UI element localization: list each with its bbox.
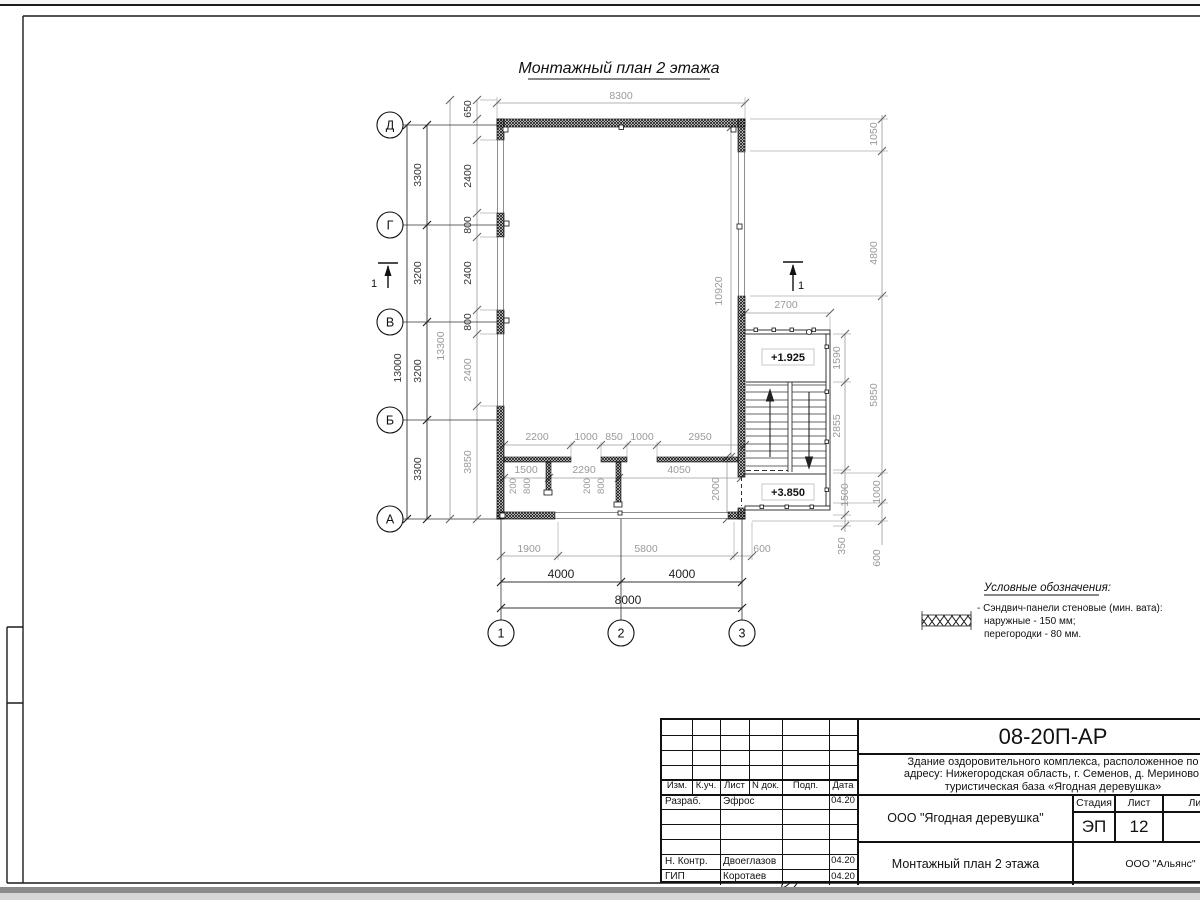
svg-text:А: А xyxy=(386,513,395,527)
svg-text:3: 3 xyxy=(739,627,746,641)
svg-text:4000: 4000 xyxy=(548,567,575,581)
tb-role-razrab: Разраб. xyxy=(662,794,720,809)
svg-text:2950: 2950 xyxy=(688,431,712,443)
svg-text:600: 600 xyxy=(753,543,771,555)
axis-bubble-labels-bottom: 1 2 3 xyxy=(498,627,746,641)
tb-header-ndok: N док. xyxy=(749,779,782,794)
svg-text:850: 850 xyxy=(605,431,623,443)
svg-text:1050: 1050 xyxy=(868,122,880,146)
elevation-lower: +3.850 xyxy=(762,484,814,500)
dimension-lines-axis xyxy=(407,125,742,608)
dim-labels-bottom: 1900 5800 600 4000 4000 8000 xyxy=(517,543,771,607)
svg-text:2400: 2400 xyxy=(462,164,474,188)
tb-header-data: Дата xyxy=(829,779,857,794)
svg-text:2400: 2400 xyxy=(462,261,474,285)
dim-labels-left-panels: 650 2400 800 2400 800 2400 3850 13300 xyxy=(435,100,474,474)
svg-text:13300: 13300 xyxy=(435,331,447,360)
title-block: Изм. К.уч. Лист N док. Подп. Дата Разраб… xyxy=(660,718,1200,883)
tb-sheet-value: 12 xyxy=(1116,813,1162,841)
legend-item-line3: перегородки - 80 мм. xyxy=(984,629,1081,640)
svg-text:4050: 4050 xyxy=(667,464,691,476)
svg-text:200: 200 xyxy=(508,478,519,494)
tb-sheets-label: Листов xyxy=(1164,796,1200,811)
elevation-upper: +1.925 xyxy=(762,349,814,365)
legend-hatch-symbol xyxy=(922,615,971,626)
stair-wall-connector-circle xyxy=(806,329,811,334)
svg-text:2700: 2700 xyxy=(774,299,798,311)
tb-header-list: Лист xyxy=(720,779,749,794)
interior-partitions xyxy=(504,457,738,502)
tb-sheet-label: Лист xyxy=(1116,796,1162,811)
tb-project-line2: адресу: Нижегородская область, г. Семено… xyxy=(904,768,1200,781)
svg-text:+3.850: +3.850 xyxy=(771,487,805,499)
plan-title: Монтажный план 2 этажа xyxy=(518,60,719,77)
axis-leader-lines xyxy=(403,125,742,620)
svg-text:3850: 3850 xyxy=(462,450,474,474)
svg-text:+1.925: +1.925 xyxy=(771,352,805,364)
svg-text:800: 800 xyxy=(522,478,533,494)
svg-text:2000: 2000 xyxy=(710,477,722,501)
legend-item-line2: наружные - 150 мм; xyxy=(984,616,1075,627)
svg-text:5800: 5800 xyxy=(634,543,658,555)
tb-name-razrab: Эфрос xyxy=(720,794,782,809)
tb-name-gip: Коротаев xyxy=(720,869,782,885)
svg-text:2: 2 xyxy=(618,627,625,641)
svg-text:13000: 13000 xyxy=(392,353,404,382)
svg-text:1590: 1590 xyxy=(831,346,843,370)
section-mark-right: 1 xyxy=(783,262,804,292)
svg-text:1000: 1000 xyxy=(871,480,883,504)
svg-text:2290: 2290 xyxy=(572,464,596,476)
svg-text:3200: 3200 xyxy=(412,359,424,383)
svg-text:1: 1 xyxy=(498,627,505,641)
axis-ticks xyxy=(403,121,746,612)
svg-text:600: 600 xyxy=(871,549,883,567)
svg-text:Г: Г xyxy=(387,219,394,233)
svg-text:2400: 2400 xyxy=(462,358,474,382)
svg-text:200: 200 xyxy=(582,478,593,494)
svg-text:1000: 1000 xyxy=(630,431,654,443)
tb-header-podp: Подп. xyxy=(782,779,829,794)
tb-sheet-title: Монтажный план 2 этажа xyxy=(859,843,1072,885)
legend-item-line1: - Сэндвич-панели стеновые (мин. вата): xyxy=(977,603,1163,614)
svg-text:2855: 2855 xyxy=(831,414,843,438)
svg-text:Д: Д xyxy=(386,119,395,133)
tb-contractor: ООО "Альянс" xyxy=(1074,843,1200,885)
tb-date-razrab: 04.20 xyxy=(829,794,857,809)
svg-text:1500: 1500 xyxy=(839,483,851,507)
svg-text:800: 800 xyxy=(596,478,607,494)
tb-project-description: Здание оздоровительного комплекса, распо… xyxy=(859,755,1200,794)
svg-text:3200: 3200 xyxy=(412,261,424,285)
svg-text:4000: 4000 xyxy=(669,567,696,581)
legend: Условные обозначения: - Сэндвич-панели с… xyxy=(922,582,1163,640)
svg-text:Б: Б xyxy=(386,414,394,428)
svg-text:5850: 5850 xyxy=(868,383,880,407)
svg-text:1: 1 xyxy=(798,280,804,292)
tb-doc-number: 08-20П-АР xyxy=(859,720,1200,753)
tb-stage-label: Стадия xyxy=(1074,796,1114,811)
tb-client: ООО "Ягодная деревушка" xyxy=(859,796,1072,841)
svg-text:3300: 3300 xyxy=(412,163,424,187)
tb-role-gip: ГИП xyxy=(662,869,720,885)
tb-project-line1: Здание оздоровительного комплекса, распо… xyxy=(908,756,1199,769)
tb-header-izm: Изм. xyxy=(662,779,692,794)
svg-text:1500: 1500 xyxy=(514,464,538,476)
svg-text:1900: 1900 xyxy=(517,543,541,555)
svg-text:10920: 10920 xyxy=(713,276,725,305)
svg-text:1: 1 xyxy=(371,278,377,290)
svg-text:В: В xyxy=(386,316,394,330)
svg-text:3300: 3300 xyxy=(412,457,424,481)
svg-text:350: 350 xyxy=(836,537,848,555)
tb-date-gip: 04.20 xyxy=(829,869,857,885)
svg-text:2200: 2200 xyxy=(525,431,549,443)
svg-text:8000: 8000 xyxy=(615,593,642,607)
axis-bubble-labels-left: Д Г В Б А xyxy=(386,119,395,527)
tb-stage-value: ЭП xyxy=(1074,813,1114,841)
svg-text:650: 650 xyxy=(462,100,474,118)
tb-date-ncontr: 04.20 xyxy=(829,854,857,869)
section-mark-left: 1 xyxy=(371,263,398,290)
legend-title: Условные обозначения: xyxy=(983,582,1111,594)
svg-text:4800: 4800 xyxy=(868,241,880,265)
svg-text:800: 800 xyxy=(462,313,474,331)
page-edge-bottom xyxy=(0,893,1200,900)
tb-role-ncontr: Н. Контр. xyxy=(662,854,720,869)
tb-project-line3: туристическая база «Ягодная деревушка» xyxy=(945,781,1162,794)
svg-text:800: 800 xyxy=(462,216,474,234)
tb-header-kuch: К.уч. xyxy=(692,779,720,794)
svg-text:1000: 1000 xyxy=(574,431,598,443)
tb-name-ncontr: Двоеглазов xyxy=(720,854,782,869)
dim-label: 8300 xyxy=(609,90,633,102)
